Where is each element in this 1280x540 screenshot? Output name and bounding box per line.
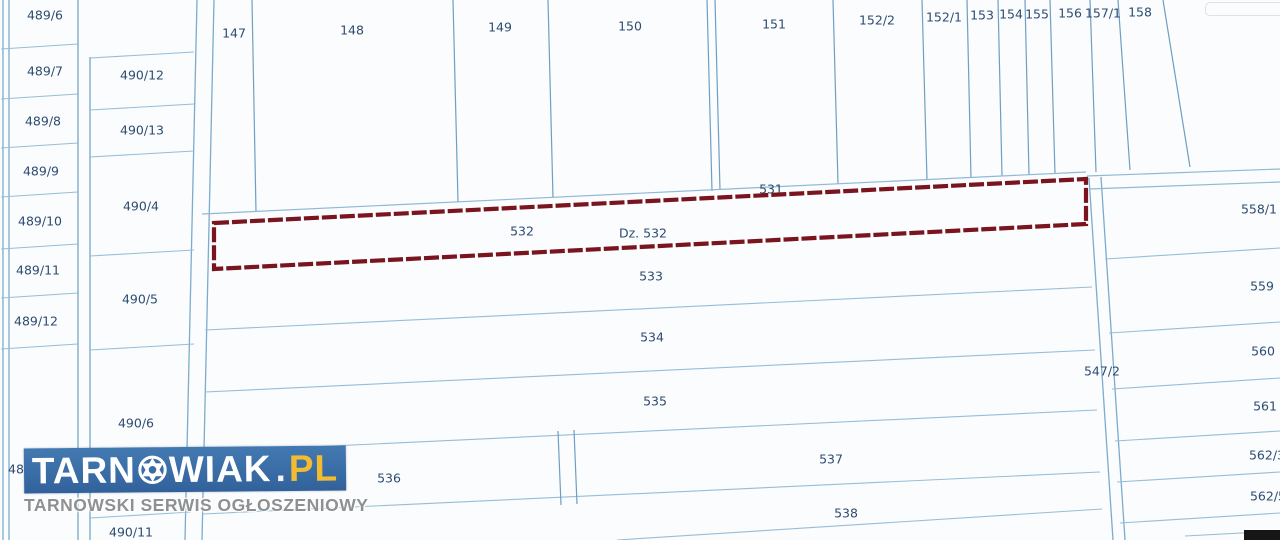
parcel-label-490-12: 490/12 — [120, 68, 164, 83]
parcel-label-490-13: 490/13 — [120, 123, 164, 138]
parcel-label-562-5: 562/5 — [1250, 489, 1280, 504]
parcel-label-156: 156 — [1058, 6, 1082, 21]
watermark-banner: TARN WIAK.PL — [24, 445, 346, 493]
watermark: TARN WIAK.PL TARNOWSKI SERWIS OGŁOSZENIO… — [24, 447, 346, 516]
parcel-label-558-1: 558/1 — [1241, 202, 1277, 217]
brand-part2: WIAK — [169, 450, 272, 488]
parcel-label-537: 537 — [819, 452, 843, 467]
parcel-label-533: 533 — [639, 269, 663, 284]
watermark-tagline: TARNOWSKI SERWIS OGŁOSZENIOWY — [24, 495, 346, 516]
parcel-label-560: 560 — [1251, 344, 1275, 359]
parcel-label-538: 538 — [834, 506, 858, 521]
bottom-right-dark-box — [1244, 530, 1280, 540]
brand-dot: . — [275, 450, 287, 487]
parcel-label-489-10: 489/10 — [18, 214, 62, 229]
parcel-label-147: 147 — [222, 26, 246, 41]
cadastral-map: 489/6489/7489/8489/9489/10489/11489/1248… — [0, 0, 1280, 540]
parcel-label-148: 148 — [340, 23, 364, 38]
parcel-label-490-4: 490/4 — [123, 199, 159, 214]
parcel-label-489-8: 489/8 — [25, 114, 61, 129]
parcel-label-152-1: 152/1 — [926, 10, 962, 25]
parcel-label-149: 149 — [488, 20, 512, 35]
parcel-label-532: 532 — [510, 224, 534, 239]
top-right-box-fragment — [1205, 2, 1280, 16]
parcel-label-153: 153 — [970, 8, 994, 23]
parcel-label-547-2: 547/2 — [1084, 364, 1120, 379]
parcel-label-489-11: 489/11 — [16, 263, 60, 278]
parcel-label-535: 535 — [643, 394, 667, 409]
parcel-label-490-5: 490/5 — [122, 292, 158, 307]
parcel-label-151: 151 — [762, 17, 786, 32]
brand-wordmark: TARN WIAK.PL — [32, 450, 339, 490]
parcel-lines-489-column — [1, 44, 78, 349]
parcel-label-489-12: 489/12 — [14, 314, 58, 329]
parcel-label-562-3: 562/3 — [1249, 448, 1280, 463]
parcel-label-489-6: 489/6 — [27, 8, 63, 23]
parcel-label-157-1: 157/1 — [1085, 6, 1121, 21]
parcel-label-489-7: 489/7 — [27, 64, 63, 79]
brand-part1: TARN — [32, 451, 136, 489]
parcel-label-536: 536 — [377, 471, 401, 486]
parcel-label-150: 150 — [618, 19, 642, 34]
parcel-label-154: 154 — [999, 7, 1023, 22]
road-531-lines — [202, 169, 1280, 214]
brand-tld: PL — [289, 450, 339, 487]
parcel-label-534: 534 — [640, 330, 664, 345]
parcel-label-559: 559 — [1250, 279, 1274, 294]
parcel-label-158: 158 — [1128, 5, 1152, 20]
parcel-label-155: 155 — [1025, 7, 1049, 22]
parcel-label-152-2: 152/2 — [859, 13, 895, 28]
star-icon — [137, 454, 168, 485]
parcel-label-561: 561 — [1253, 399, 1277, 414]
parcel-label-489-9: 489/9 — [23, 164, 59, 179]
parcel-label-Dz-532: Dz. 532 — [619, 226, 667, 241]
parcel-label-490-6: 490/6 — [118, 416, 154, 431]
parcel-label-490-11: 490/11 — [109, 525, 153, 540]
